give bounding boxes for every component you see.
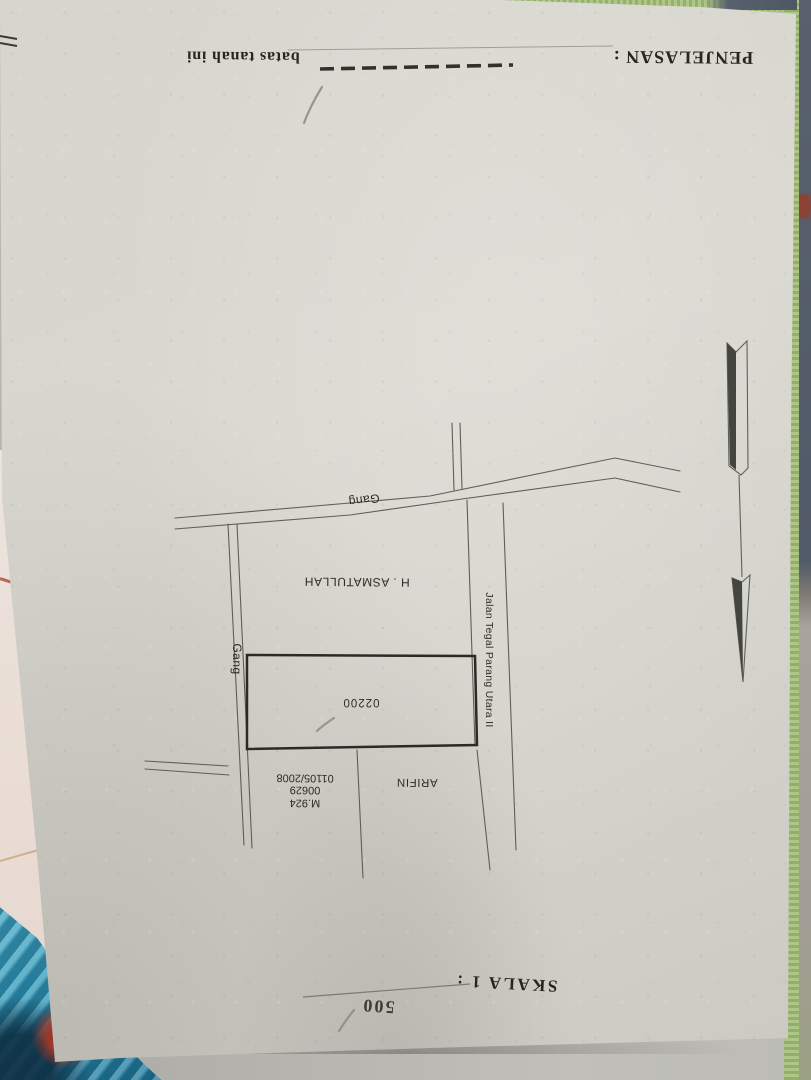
pencil-check-marks (304, 87, 354, 1031)
legend-boundary-label: batas tanah ini (186, 47, 300, 66)
plot-owner-label: H . ASMATULLAH (304, 575, 410, 590)
certificate-line-3: 01105/2008 (276, 771, 333, 784)
road-label-main-street: Jalan Tegal Parang Utara II (483, 592, 495, 727)
legend-lines (0, 36, 613, 997)
road-lines (145, 423, 680, 878)
legend-title: PENJELASAN : (613, 46, 754, 68)
certificate-block: M.924 00629 01105/2008 (276, 771, 334, 809)
plot-number-label: 02200 (343, 696, 380, 708)
certificate-line-2: 00629 (276, 784, 333, 797)
road-label-gang-left: Gang (230, 643, 244, 674)
neighbor-label: ARIFIN (396, 776, 437, 788)
north-arrow-icon (727, 341, 750, 682)
sketch-linework (0, 0, 811, 1080)
photo-frame: PENJELASAN : batas tanah ini SKALA 1 : 5… (0, 0, 811, 1080)
scale-value: 500 (361, 994, 395, 1017)
certificate-line-1: M.924 (276, 796, 333, 809)
